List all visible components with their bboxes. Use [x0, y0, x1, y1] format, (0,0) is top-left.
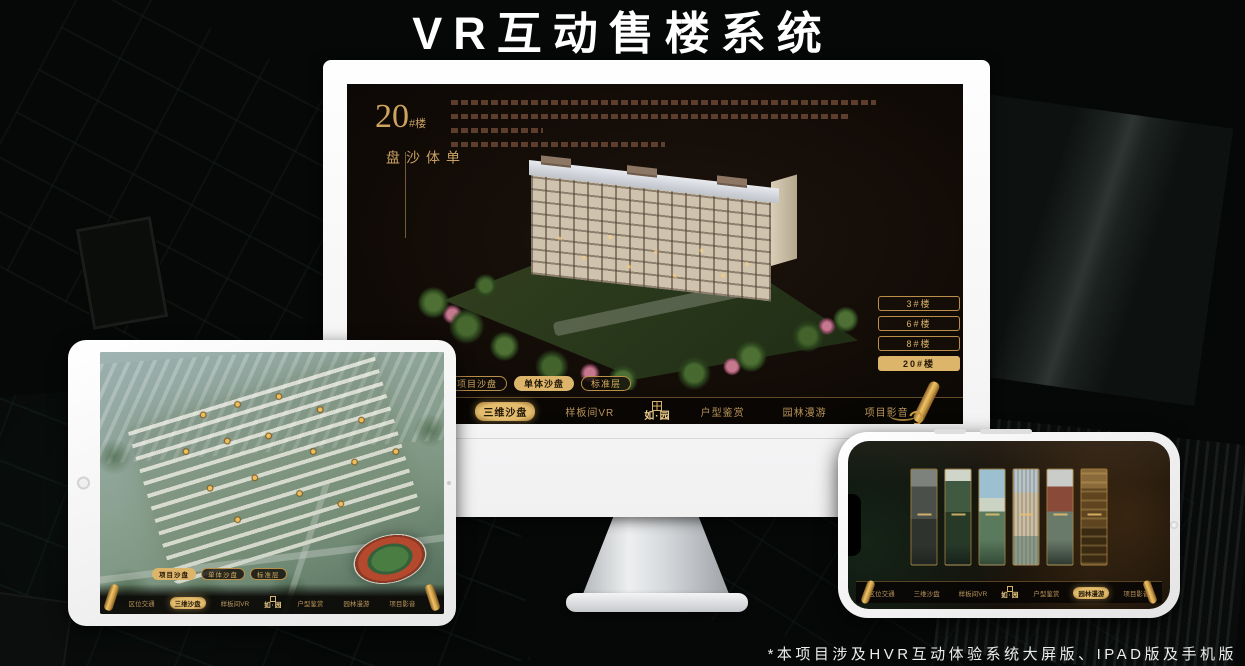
scene-panel-interior[interactable] [1081, 468, 1108, 565]
phone-device: 区位交通 三维沙盘 样板间VR 如·园 户型鉴赏 园林漫游 项目影音 [838, 432, 1180, 618]
scene-panel-landscape[interactable] [979, 468, 1006, 565]
phone-screen: 区位交通 三维沙盘 样板间VR 如·园 户型鉴赏 园林漫游 项目影音 [848, 441, 1170, 609]
phone-power-button[interactable] [980, 429, 1032, 434]
brand-logo-name: 如·园 [644, 412, 670, 422]
building-selector: 3#楼 6#楼 8#楼 20#楼 [878, 296, 960, 371]
scene-panel-building[interactable] [1013, 468, 1040, 565]
phone-nav-bar: 区位交通 三维沙盘 样板间VR 如·园 户型鉴赏 园林漫游 项目影音 [856, 581, 1162, 603]
scene-panel-garden[interactable] [945, 468, 972, 565]
tablet-camera-dot [447, 481, 451, 485]
tablet-nav-project-media[interactable]: 项目影音 [384, 597, 420, 609]
scene-panel-carousel [911, 468, 1108, 565]
tablet-nav-bar: 区位交通 三维沙盘 样板间VR 如·园 户型鉴赏 园林漫游 项目影音 [100, 584, 444, 614]
tablet-nav-location-traffic[interactable]: 区位交通 [124, 597, 160, 609]
tab-single-sand-table[interactable]: 单体沙盘 [514, 376, 574, 391]
monitor-stand-base [566, 593, 748, 612]
tablet-home-button[interactable] [77, 477, 90, 490]
nav-item-3d-sand-table[interactable]: 三维沙盘 [475, 402, 535, 421]
seal-icon [652, 401, 662, 411]
tablet-nav-unit-appreciation[interactable]: 户型鉴赏 [292, 597, 328, 609]
page-title: VR互动售楼系统 [0, 0, 1245, 58]
tablet-tab-standard-floor[interactable]: 标准层 [250, 568, 287, 580]
nav-item-garden-roam[interactable]: 园林漫游 [775, 402, 835, 421]
sand-table-sub-tabs: 项目沙盘 单体沙盘 标准层 [447, 376, 631, 391]
building-button-8[interactable]: 8#楼 [878, 336, 960, 351]
scene-panel-pavilion[interactable] [1047, 468, 1074, 565]
background-card-bottom-left [0, 591, 73, 666]
footer-note: *本项目涉及HVR互动体验系统大屏版、IPAD版及手机版 [768, 643, 1237, 664]
building-title-block: 20#楼 单体沙盘 [375, 100, 426, 134]
poster: VR互动售楼系统 20#楼 单体沙盘 3#楼 6#楼 8#楼 [0, 0, 1245, 666]
tab-standard-floor[interactable]: 标准层 [581, 376, 631, 391]
brand-logo[interactable]: 如·园 [644, 401, 670, 422]
phone-nav-3d-sand-table[interactable]: 三维沙盘 [909, 587, 945, 599]
tablet-sub-tabs: 项目沙盘 单体沙盘 标准层 [152, 568, 287, 580]
phone-nav-showroom-vr[interactable]: 样板间VR [954, 587, 993, 599]
description-text-lines [451, 100, 881, 156]
building-number: 20 [375, 98, 409, 135]
building-button-20[interactable]: 20#楼 [878, 356, 960, 371]
tablet-nav-showroom-vr[interactable]: 样板间VR [216, 597, 255, 609]
tablet-brand-logo-name: 如·园 [264, 603, 282, 610]
tablet-screen: 项目沙盘 单体沙盘 标准层 区位交通 三维沙盘 样板间VR 如·园 户型鉴赏 园… [100, 352, 444, 614]
phone-notch [848, 494, 861, 556]
phone-brand-logo-name: 如·园 [1001, 593, 1019, 600]
building-button-3[interactable]: 3#楼 [878, 296, 960, 311]
tablet-brand-logo[interactable]: 如·园 [264, 596, 282, 610]
seal-icon [270, 596, 276, 602]
phone-camera-dot [1170, 521, 1178, 529]
scene-panel-courtyard[interactable] [911, 468, 938, 565]
phone-brand-logo[interactable]: 如·园 [1001, 586, 1019, 600]
building-number-suffix: #楼 [409, 118, 426, 130]
tab-project-sand-table[interactable]: 项目沙盘 [447, 376, 507, 391]
tablet-device: 项目沙盘 单体沙盘 标准层 区位交通 三维沙盘 样板间VR 如·园 户型鉴赏 园… [68, 340, 456, 626]
tablet-nav-garden-roam[interactable]: 园林漫游 [338, 597, 374, 609]
tablet-tab-project-sand-table[interactable]: 项目沙盘 [152, 568, 196, 580]
tablet-nav-3d-sand-table[interactable]: 三维沙盘 [170, 597, 206, 609]
seal-icon [1007, 586, 1013, 592]
nav-item-unit-appreciation[interactable]: 户型鉴赏 [693, 402, 753, 421]
scroll-menu-icon[interactable] [899, 380, 951, 424]
phone-volume-button[interactable] [934, 429, 966, 434]
nav-item-showroom-vr[interactable]: 样板间VR [557, 402, 622, 421]
phone-nav-garden-roam[interactable]: 园林漫游 [1073, 587, 1109, 599]
building-button-6[interactable]: 6#楼 [878, 316, 960, 331]
phone-nav-unit-appreciation[interactable]: 户型鉴赏 [1028, 587, 1064, 599]
tablet-tab-single-sand-table[interactable]: 单体沙盘 [201, 568, 245, 580]
